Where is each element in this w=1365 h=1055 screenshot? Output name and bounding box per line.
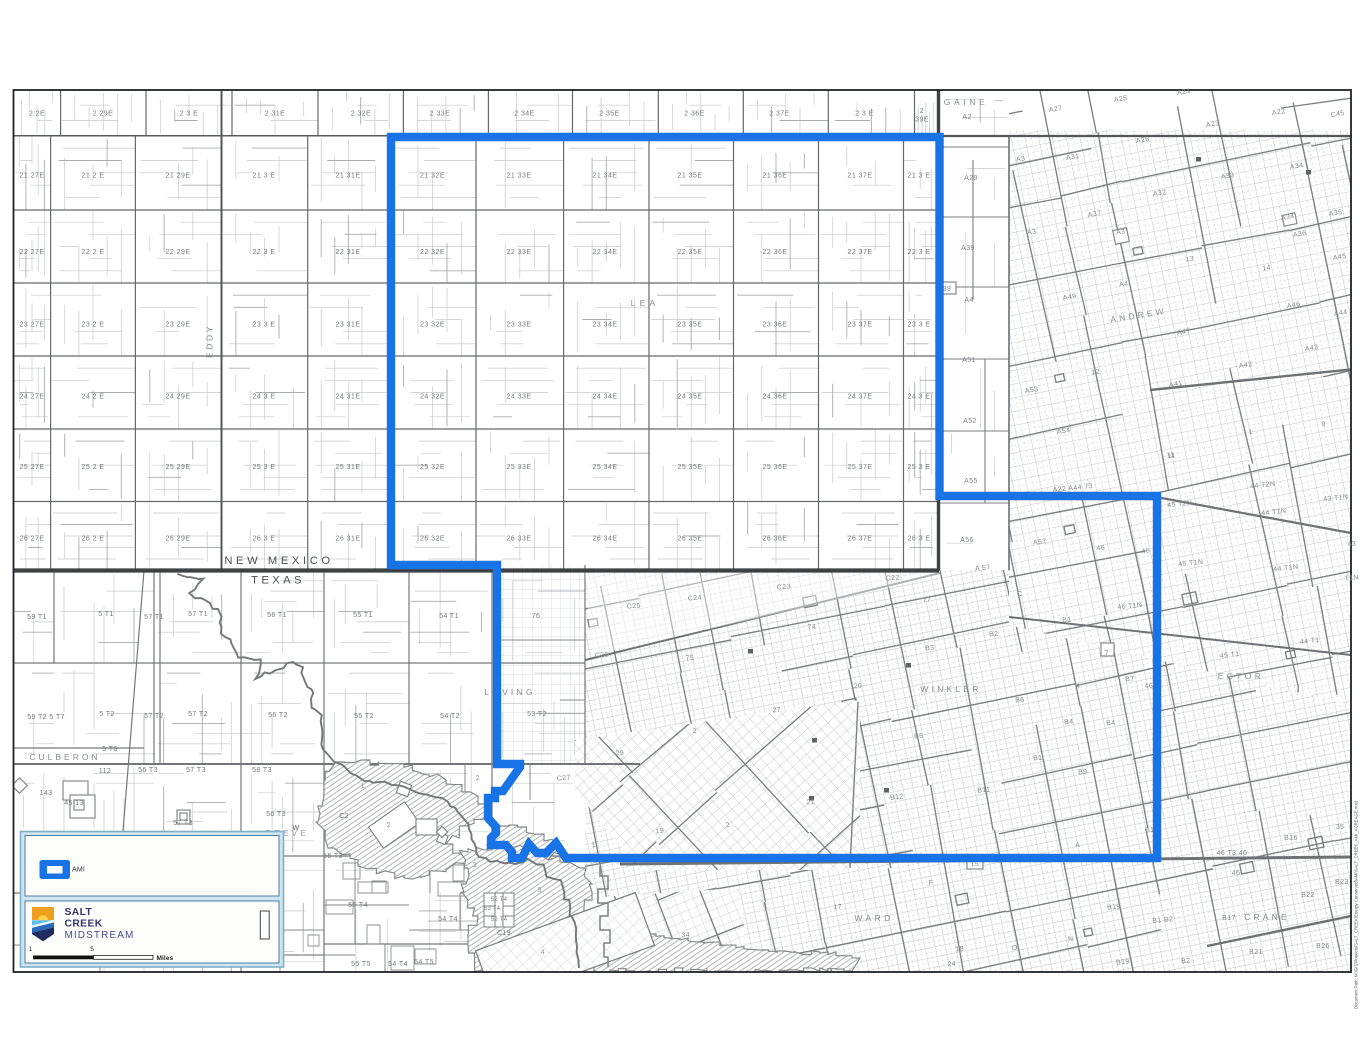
- svg-text:B19: B19: [1116, 958, 1130, 966]
- svg-text:WARD: WARD: [854, 913, 893, 923]
- svg-text:24 37E: 24 37E: [848, 394, 873, 401]
- svg-text:ECTOR: ECTOR: [1218, 671, 1265, 681]
- svg-text:B26: B26: [1316, 943, 1330, 950]
- svg-text:21 29E: 21 29E: [166, 173, 191, 180]
- svg-text:57 T1: 57 T1: [188, 611, 208, 618]
- svg-text:57 T1: 57 T1: [144, 614, 164, 621]
- svg-text:24 33E: 24 33E: [507, 394, 532, 401]
- svg-text:23 32E: 23 32E: [420, 322, 445, 329]
- svg-text:5 T6: 5 T6: [102, 746, 117, 753]
- svg-text:B2: B2: [1181, 958, 1191, 966]
- svg-text:B11: B11: [977, 786, 991, 794]
- svg-text:25 31E: 25 31E: [336, 464, 361, 471]
- svg-text:25 3 E: 25 3 E: [908, 464, 931, 471]
- svg-text:25 36E: 25 36E: [763, 464, 788, 471]
- svg-text:57 T2: 57 T2: [188, 711, 208, 718]
- svg-text:C25: C25: [627, 602, 642, 610]
- svg-text:24 35E: 24 35E: [678, 394, 703, 401]
- svg-text:B22: B22: [1301, 892, 1315, 899]
- svg-text:B12: B12: [890, 793, 904, 801]
- svg-text:24 31E: 24 31E: [336, 394, 361, 401]
- svg-text:5 T2: 5 T2: [99, 711, 114, 718]
- svg-text:54 T1: 54 T1: [439, 613, 459, 620]
- svg-text:75: 75: [685, 655, 694, 663]
- svg-text:11: 11: [1167, 453, 1176, 461]
- svg-text:24 3 E: 24 3 E: [908, 394, 931, 401]
- svg-text:13: 13: [1185, 255, 1195, 263]
- svg-text:54 T5: 54 T5: [414, 959, 434, 966]
- svg-text:59 T2 5 T7: 59 T2 5 T7: [27, 714, 65, 721]
- svg-text:5 T1: 5 T1: [98, 611, 113, 618]
- svg-text:23 3 E: 23 3 E: [253, 322, 276, 329]
- svg-text:2 34E: 2 34E: [514, 111, 535, 118]
- svg-text:22 34E: 22 34E: [593, 249, 618, 256]
- svg-text:C26: C26: [595, 651, 610, 659]
- svg-text:22 32E: 22 32E: [420, 249, 445, 256]
- svg-text:B9: B9: [1078, 769, 1088, 777]
- svg-text:53 T4: 53 T4: [484, 906, 501, 912]
- svg-text:23 2 E: 23 2 E: [82, 322, 105, 329]
- svg-text:34: 34: [681, 932, 690, 940]
- svg-text:23 29E: 23 29E: [166, 322, 191, 329]
- svg-text:2 3 E: 2 3 E: [180, 111, 199, 118]
- svg-text:Document Path: M:\GIS\Projects: Document Path: M:\GIS\Projects\SALT_CREE…: [1354, 800, 1359, 1009]
- svg-text:25 35E: 25 35E: [678, 464, 703, 471]
- svg-text:22 29E: 22 29E: [166, 249, 191, 256]
- svg-text:23 35E: 23 35E: [678, 322, 703, 329]
- svg-text:1: 1: [360, 783, 365, 790]
- svg-text:O: O: [1012, 945, 1019, 952]
- svg-text:112: 112: [99, 768, 111, 775]
- svg-text:26 35E: 26 35E: [678, 536, 703, 543]
- svg-text:74: 74: [807, 624, 816, 632]
- svg-text:45 13: 45 13: [64, 800, 84, 807]
- svg-text:Miles: Miles: [157, 955, 174, 962]
- svg-text:A3: A3: [1027, 228, 1037, 236]
- svg-text:A52: A52: [963, 418, 977, 425]
- svg-text:C: C: [1017, 591, 1023, 598]
- svg-text:21 27E: 21 27E: [20, 173, 45, 180]
- svg-text:B23: B23: [1335, 879, 1349, 886]
- svg-text:25 32E: 25 32E: [420, 464, 445, 471]
- svg-text:22 3 E: 22 3 E: [253, 249, 276, 256]
- svg-text:25 2 E: 25 2 E: [82, 464, 105, 471]
- svg-text:B19: B19: [1107, 903, 1121, 911]
- svg-text:W: W: [292, 825, 299, 832]
- svg-text:26 27E: 26 27E: [20, 536, 45, 543]
- svg-text:143: 143: [40, 790, 53, 797]
- svg-text:21 36E: 21 36E: [763, 173, 788, 180]
- svg-text:2 36E: 2 36E: [684, 111, 705, 118]
- svg-text:23 37E: 23 37E: [848, 322, 873, 329]
- svg-text:5: 5: [90, 946, 94, 953]
- svg-text:B21: B21: [1249, 949, 1263, 956]
- svg-text:2: 2: [920, 108, 924, 115]
- svg-text:A4: A4: [964, 297, 973, 304]
- svg-text:26 31E: 26 31E: [336, 536, 361, 543]
- svg-text:35: 35: [1336, 824, 1345, 831]
- svg-text:56 T2: 56 T2: [268, 712, 288, 719]
- svg-text:25 37E: 25 37E: [848, 464, 873, 471]
- svg-text:55 T3: 55 T3: [323, 853, 343, 860]
- svg-text:A51: A51: [962, 357, 976, 364]
- svg-text:26 3 E: 26 3 E: [908, 536, 931, 543]
- svg-text:A3: A3: [1016, 155, 1026, 163]
- svg-text:55 T2: 55 T2: [354, 713, 374, 720]
- svg-text:26 29E: 26 29E: [166, 536, 191, 543]
- svg-text:46: 46: [1232, 870, 1241, 877]
- svg-text:2 32E: 2 32E: [351, 111, 372, 118]
- svg-text:22 3 E: 22 3 E: [908, 249, 931, 256]
- svg-text:2 31E: 2 31E: [265, 111, 286, 118]
- svg-text:14: 14: [1262, 264, 1272, 272]
- svg-text:21 35E: 21 35E: [678, 173, 703, 180]
- svg-text:2 33E: 2 33E: [430, 111, 451, 118]
- svg-text:CREEK: CREEK: [65, 919, 103, 930]
- svg-text:WINKLER: WINKLER: [920, 684, 981, 694]
- svg-text:CRANE: CRANE: [1244, 912, 1290, 922]
- svg-text:23 34E: 23 34E: [593, 322, 618, 329]
- svg-text:EDDY: EDDY: [205, 324, 215, 358]
- svg-text:24 2 E: 24 2 E: [82, 394, 105, 401]
- svg-text:21 3 E: 21 3 E: [908, 173, 931, 180]
- svg-text:A55: A55: [964, 478, 978, 485]
- svg-text:26 32E: 26 32E: [420, 536, 445, 543]
- svg-text:2: 2: [386, 822, 391, 829]
- svg-text:22 35E: 22 35E: [678, 249, 703, 256]
- svg-text:25 27E: 25 27E: [20, 464, 45, 471]
- svg-text:A3: A3: [1116, 228, 1126, 236]
- svg-text:2 3 E: 2 3 E: [855, 111, 874, 118]
- svg-text:57 T3: 57 T3: [186, 767, 206, 774]
- svg-text:21 3 E: 21 3 E: [253, 173, 276, 180]
- svg-text:56 T3: 56 T3: [138, 767, 158, 774]
- svg-text:3: 3: [537, 887, 542, 894]
- svg-text:2 37E: 2 37E: [769, 111, 790, 118]
- svg-text:57 T2: 57 T2: [144, 713, 164, 720]
- svg-text:25 33E: 25 33E: [507, 464, 532, 471]
- svg-text:24 29E: 24 29E: [166, 394, 191, 401]
- svg-text:21: 21: [806, 799, 815, 807]
- svg-text:24: 24: [947, 961, 956, 969]
- svg-text:39E: 39E: [915, 117, 929, 124]
- svg-text:C27: C27: [557, 774, 572, 782]
- svg-text:22 27E: 22 27E: [20, 249, 45, 256]
- svg-text:25 34E: 25 34E: [593, 464, 618, 471]
- svg-text:21 34E: 21 34E: [593, 173, 618, 180]
- svg-text:4: 4: [1075, 683, 1080, 690]
- svg-text:54 T4: 54 T4: [388, 961, 408, 968]
- svg-text:22 37E: 22 37E: [848, 249, 873, 256]
- svg-text:LEA: LEA: [631, 298, 660, 308]
- svg-text:4: 4: [540, 949, 545, 956]
- svg-text:2 35E: 2 35E: [599, 111, 620, 118]
- svg-text:22 33E: 22 33E: [507, 249, 532, 256]
- svg-text:76: 76: [532, 613, 541, 620]
- svg-text:24 32E: 24 32E: [420, 394, 445, 401]
- svg-text:21 33E: 21 33E: [507, 173, 532, 180]
- svg-text:7: 7: [1104, 650, 1109, 657]
- svg-text:B7: B7: [1125, 676, 1135, 684]
- svg-text:23 36E: 23 36E: [763, 322, 788, 329]
- svg-text:25 29E: 25 29E: [166, 464, 191, 471]
- svg-text:B1: B1: [1033, 755, 1043, 763]
- svg-text:58 T3: 58 T3: [252, 767, 272, 774]
- svg-text:29: 29: [615, 750, 624, 758]
- svg-text:46 T3 46: 46 T3 46: [1217, 850, 1248, 857]
- svg-text:53 T2: 53 T2: [527, 711, 547, 718]
- svg-text:C24: C24: [688, 594, 703, 602]
- svg-text:55 T1: 55 T1: [353, 612, 373, 619]
- svg-text:52 T4: 52 T4: [491, 897, 508, 903]
- svg-text:56 T3: 56 T3: [266, 811, 286, 818]
- svg-text:2 2E: 2 2E: [29, 111, 45, 118]
- svg-text:A2: A2: [962, 114, 971, 121]
- svg-text:26 3 E: 26 3 E: [253, 536, 276, 543]
- svg-text:A56: A56: [960, 537, 974, 544]
- svg-text:23 3 E: 23 3 E: [908, 322, 931, 329]
- svg-text:59 T1: 59 T1: [27, 614, 47, 621]
- svg-text:F: F: [928, 880, 933, 887]
- svg-text:A29: A29: [964, 175, 978, 182]
- svg-text:C22: C22: [886, 574, 901, 582]
- svg-text:A4: A4: [1119, 280, 1129, 288]
- svg-text:77: 77: [922, 597, 931, 605]
- svg-text:26 37E: 26 37E: [848, 536, 873, 543]
- svg-text:—: —: [995, 95, 1004, 105]
- svg-text:43: 43: [1347, 541, 1356, 549]
- svg-text:24 34E: 24 34E: [593, 394, 618, 401]
- svg-text:B5: B5: [914, 733, 924, 741]
- svg-text:56 T1: 56 T1: [267, 612, 287, 619]
- svg-text:TEXAS: TEXAS: [251, 575, 305, 587]
- svg-text:55 T4: 55 T4: [348, 902, 368, 909]
- svg-text:22 36E: 22 36E: [763, 249, 788, 256]
- svg-text:MIDSTREAM: MIDSTREAM: [65, 930, 135, 941]
- svg-text:12: 12: [1091, 368, 1101, 376]
- svg-text:CULBERON: CULBERON: [29, 752, 100, 762]
- svg-text:B17: B17: [1222, 915, 1236, 922]
- svg-text:N: N: [1068, 936, 1074, 943]
- svg-text:C23: C23: [777, 583, 792, 591]
- svg-text:1: 1: [29, 946, 33, 953]
- svg-text:26 33E: 26 33E: [507, 536, 532, 543]
- svg-text:52 T4: 52 T4: [491, 917, 508, 923]
- svg-text:GAINE: GAINE: [944, 97, 988, 107]
- svg-text:B4: B4: [1064, 719, 1074, 727]
- svg-text:B4: B4: [1106, 720, 1116, 728]
- svg-text:C19: C19: [497, 930, 511, 937]
- svg-text:AMI: AMI: [72, 867, 85, 874]
- svg-text:26 34E: 26 34E: [593, 536, 618, 543]
- svg-text:46: 46: [1096, 545, 1105, 553]
- svg-text:2: 2: [692, 728, 697, 735]
- svg-text:B16: B16: [1284, 835, 1298, 842]
- svg-text:2: 2: [475, 775, 480, 782]
- svg-text:B2: B2: [989, 631, 999, 639]
- svg-text:23 31E: 23 31E: [336, 322, 361, 329]
- svg-text:26 36E: 26 36E: [763, 536, 788, 543]
- svg-text:54 T2: 54 T2: [440, 713, 460, 720]
- svg-text:26: 26: [853, 683, 862, 691]
- svg-text:46: 46: [1141, 548, 1150, 556]
- svg-text:55 T5: 55 T5: [351, 961, 371, 968]
- svg-text:1: 1: [763, 903, 768, 910]
- svg-text:24 27E: 24 27E: [20, 394, 45, 401]
- svg-text:25 3 E: 25 3 E: [253, 464, 276, 471]
- svg-text:2: 2: [725, 822, 730, 829]
- svg-text:57 T3: 57 T3: [173, 820, 193, 827]
- svg-text:LOVING: LOVING: [484, 687, 535, 697]
- svg-text:3: 3: [472, 862, 477, 869]
- svg-text:24 36E: 24 36E: [763, 394, 788, 401]
- svg-text:B6: B6: [1015, 697, 1025, 705]
- svg-text:26 2 E: 26 2 E: [82, 536, 105, 543]
- svg-text:1: 1: [591, 842, 596, 849]
- svg-text:27: 27: [772, 707, 781, 715]
- svg-text:SALT: SALT: [65, 907, 93, 918]
- svg-text:18: 18: [955, 946, 964, 954]
- svg-text:21 37E: 21 37E: [848, 173, 873, 180]
- svg-text:C2: C2: [339, 813, 349, 820]
- svg-text:23 27E: 23 27E: [20, 322, 45, 329]
- svg-text:23 33E: 23 33E: [507, 322, 532, 329]
- svg-text:B3: B3: [925, 645, 935, 653]
- svg-text:17: 17: [833, 904, 842, 912]
- svg-text:46: 46: [1144, 683, 1153, 691]
- svg-text:22 2 E: 22 2 E: [82, 249, 105, 256]
- svg-text:54 T4: 54 T4: [438, 916, 458, 923]
- svg-text:B1: B1: [1062, 617, 1072, 625]
- svg-text:21 2 E: 21 2 E: [82, 173, 105, 180]
- svg-text:A57: A57: [1033, 538, 1047, 546]
- svg-text:24 3 E: 24 3 E: [253, 394, 276, 401]
- svg-text:NEW MEXICO: NEW MEXICO: [224, 555, 333, 567]
- svg-text:2 29E: 2 29E: [93, 111, 114, 118]
- svg-text:21 31E: 21 31E: [336, 173, 361, 180]
- svg-text:A: A: [1075, 842, 1081, 849]
- svg-text:39: 39: [943, 286, 952, 293]
- svg-text:22 31E: 22 31E: [336, 249, 361, 256]
- svg-text:21 32E: 21 32E: [420, 173, 445, 180]
- svg-text:19: 19: [655, 828, 664, 836]
- svg-text:A39: A39: [961, 245, 975, 252]
